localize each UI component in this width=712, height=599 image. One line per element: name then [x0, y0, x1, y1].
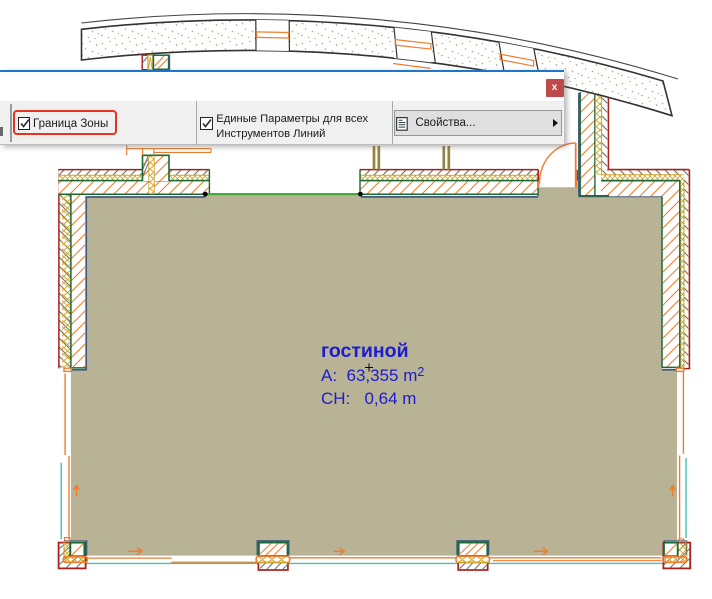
svg-text:гостиной: гостиной: [321, 340, 409, 362]
svg-text:CH: 0,64 m: CH: 0,64 m: [321, 389, 416, 408]
